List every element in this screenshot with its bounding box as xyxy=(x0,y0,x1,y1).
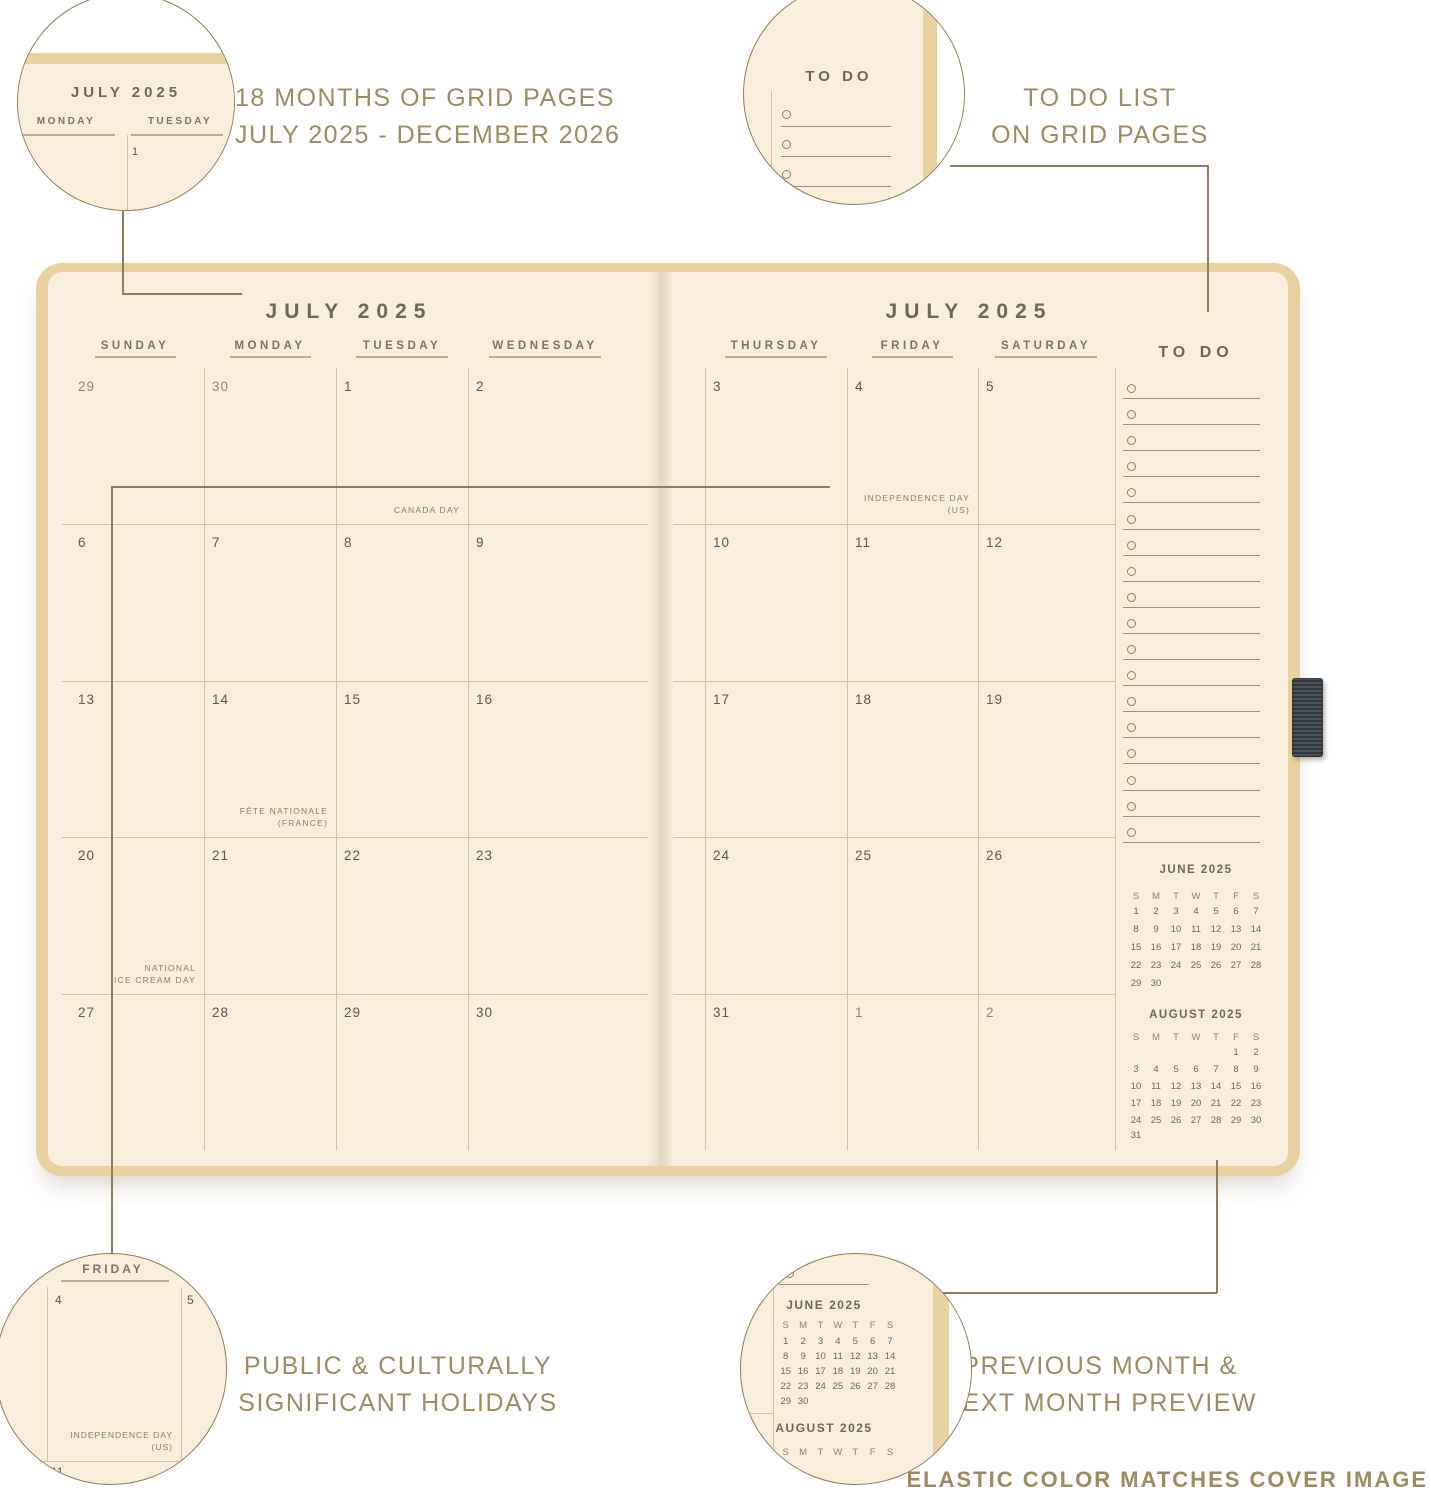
circle-mini-letters: SMTWTFS xyxy=(777,1320,899,1331)
mini-cell: 20 xyxy=(1231,942,1242,953)
elastic-note: ELASTIC COLOR MATCHES COVER IMAGE xyxy=(900,1467,1428,1493)
mini-cell: T xyxy=(1173,1032,1179,1043)
row-line xyxy=(62,837,648,838)
mini-cell: S xyxy=(1133,1032,1139,1043)
mini-cell: S xyxy=(1253,1032,1259,1043)
date-cell-31: 31 xyxy=(713,1005,730,1020)
mini-cell: 3 xyxy=(1173,906,1178,917)
caption-bottom-left-line1: PUBLIC & CULTURALLY xyxy=(208,1348,588,1385)
circle-mini-row: 891011121314 xyxy=(777,1351,899,1362)
mini-cell: 4 xyxy=(835,1336,840,1347)
mini-week-row: 17181920212223 xyxy=(1126,1098,1266,1109)
mini-cell: 25 xyxy=(833,1381,844,1392)
circle-todo-item-line xyxy=(781,186,891,187)
row-line xyxy=(673,837,1115,838)
mini-cell: 2 xyxy=(800,1336,805,1347)
circle-day-friday: FRIDAY xyxy=(43,1262,183,1276)
todo-item-line xyxy=(1123,424,1260,425)
day-header-underline xyxy=(995,356,1097,358)
circle-date-4: 4 xyxy=(55,1293,62,1307)
date-cell-12: 12 xyxy=(986,535,1003,550)
holiday-line: FÊTE NATIONALE xyxy=(178,805,328,817)
circle-todo-item-line xyxy=(781,156,891,157)
date-cell-18: 18 xyxy=(855,692,872,707)
todo-item-circle xyxy=(1127,515,1136,524)
day-header-underline xyxy=(872,356,953,358)
date-cell-10: 10 xyxy=(713,535,730,550)
mini-cell: 22 xyxy=(1131,960,1142,971)
mini-cell: 12 xyxy=(1211,924,1222,935)
mini-cell: T xyxy=(818,1447,824,1458)
mini-week-row: 12 xyxy=(1126,1047,1266,1058)
day-header-underline xyxy=(95,356,176,358)
todo-item-line xyxy=(1123,711,1260,712)
mini-cell: S xyxy=(1253,891,1259,902)
mini-cell: W xyxy=(833,1320,842,1331)
mini-cell: 6 xyxy=(1233,906,1238,917)
mini-cell: 20 xyxy=(867,1366,878,1377)
mini-cell: 24 xyxy=(1131,1115,1142,1126)
mini-cell: 5 xyxy=(1213,906,1218,917)
holiday-label: INDEPENDENCE DAY(US) xyxy=(820,492,970,516)
row-line xyxy=(62,681,648,682)
mini-week-row: 22232425262728 xyxy=(1126,960,1266,971)
mini-cell: 16 xyxy=(798,1366,809,1377)
mini-cell: 17 xyxy=(1131,1098,1142,1109)
mini-cell: 28 xyxy=(1211,1115,1222,1126)
cell-border-right xyxy=(181,1287,182,1461)
mini-cell: 1 xyxy=(1133,906,1138,917)
day-header-underline xyxy=(230,356,311,358)
holiday-line: (FRANCE) xyxy=(178,817,328,829)
mini-cell: 12 xyxy=(1171,1081,1182,1092)
todo-item-line xyxy=(1123,737,1260,738)
date-cell-27: 27 xyxy=(78,1005,95,1020)
page-fold xyxy=(646,272,674,1166)
date-cell-20: 20 xyxy=(78,848,95,863)
mini-cell: 14 xyxy=(1211,1081,1222,1092)
date-cell-29: 29 xyxy=(78,379,95,394)
mini-cell: M xyxy=(799,1447,807,1458)
mini-cell: 23 xyxy=(1151,960,1162,971)
mini-cell: 15 xyxy=(1131,942,1142,953)
circle-mini-row: 15161718192021 xyxy=(777,1366,899,1377)
callout-line-bottom-left-h xyxy=(111,486,830,488)
mini-cell: 5 xyxy=(1173,1064,1178,1075)
mini-cell: 16 xyxy=(1251,1081,1262,1092)
mini-cell: M xyxy=(1152,1032,1160,1043)
mini-cell: T xyxy=(1213,891,1219,902)
date-cell-16: 16 xyxy=(476,692,493,707)
zoom-circle-bottom-left: FRIDAY 4 5 INDEPENDENCE DAY (US) 11 xyxy=(0,1253,227,1485)
date-cell-11: 11 xyxy=(855,535,871,550)
column-divider xyxy=(847,368,848,1150)
cover-edge-band xyxy=(18,53,234,64)
todo-item-circle xyxy=(1127,776,1136,785)
row-line xyxy=(673,524,1115,525)
mini-week-row: 31 xyxy=(1126,1130,1266,1141)
mini-cell: 12 xyxy=(850,1351,861,1362)
todo-item-line xyxy=(1123,502,1260,503)
day-header-tuesday: TUESDAY xyxy=(327,340,477,352)
circle-mini-row: 1234567 xyxy=(777,1336,899,1347)
mini-cell: 22 xyxy=(1231,1098,1242,1109)
circle-date-1: 1 xyxy=(132,146,138,158)
row-line xyxy=(62,994,648,995)
todo-header: TO DO xyxy=(1126,344,1266,362)
circle-holiday-line2: (US) xyxy=(33,1441,173,1453)
pen-loop xyxy=(1292,678,1323,757)
mini-cell: 29 xyxy=(1131,978,1142,989)
circle-todo-item-circle xyxy=(782,170,791,179)
grid-row-line xyxy=(741,1413,773,1414)
callout-line-top-right-h xyxy=(950,165,1208,167)
todo-item-circle xyxy=(1127,619,1136,628)
todo-item-circle xyxy=(1127,567,1136,576)
mini-cell: 13 xyxy=(1191,1081,1202,1092)
date-cell-9: 9 xyxy=(476,535,485,550)
date-cell-4: 4 xyxy=(855,379,864,394)
todo-item-line xyxy=(1123,398,1260,399)
todo-item-circle xyxy=(1127,541,1136,550)
circle-day-monday: MONDAY xyxy=(18,116,114,127)
circle-todo-item-line xyxy=(781,126,891,127)
holiday-line: ICE CREAM DAY xyxy=(46,974,196,986)
date-cell-28: 28 xyxy=(212,1005,229,1020)
date-cell-2: 2 xyxy=(476,379,485,394)
holiday-line: NATIONAL xyxy=(46,962,196,974)
todo-item-line xyxy=(1123,450,1260,451)
caption-top-right-line2: ON GRID PAGES xyxy=(910,117,1290,154)
mini-cell: 14 xyxy=(1251,924,1262,935)
mini-cell: 16 xyxy=(1151,942,1162,953)
todo-item-line xyxy=(1123,685,1260,686)
todo-item-circle xyxy=(785,1269,794,1278)
todo-item-line xyxy=(1123,476,1260,477)
date-cell-14: 14 xyxy=(212,692,229,707)
circle-date-11: 11 xyxy=(51,1465,63,1479)
mini-cell: F xyxy=(870,1447,876,1458)
mini-cell: T xyxy=(818,1320,824,1331)
mini-cell: T xyxy=(852,1320,858,1331)
circle-todo-title: TO DO xyxy=(769,68,909,85)
todo-item-line xyxy=(1123,555,1260,556)
callout-line-top-left-h xyxy=(122,293,242,295)
mini-cell: 26 xyxy=(1211,960,1222,971)
todo-item-line xyxy=(1123,842,1260,843)
mini-week-row: 1234567 xyxy=(1126,906,1266,917)
todo-item-line xyxy=(779,1284,869,1285)
mini-cell: 8 xyxy=(783,1351,788,1362)
mini-week-row: 3456789 xyxy=(1126,1064,1266,1075)
mini-cell: 7 xyxy=(1253,906,1258,917)
mini-cell: 6 xyxy=(870,1336,875,1347)
date-cell-2: 2 xyxy=(986,1005,995,1020)
date-cell-30: 30 xyxy=(476,1005,493,1020)
date-cell-1: 1 xyxy=(344,379,353,394)
caption-top-left-line2: JULY 2025 - DECEMBER 2026 xyxy=(235,117,615,154)
mini-cell: 8 xyxy=(1133,924,1138,935)
mini-cell: 25 xyxy=(1151,1115,1162,1126)
todo-item-circle xyxy=(1127,645,1136,654)
todo-item-line xyxy=(1123,659,1260,660)
date-cell-17: 17 xyxy=(713,692,730,707)
todo-item-line xyxy=(1123,816,1260,817)
holiday-line: INDEPENDENCE DAY xyxy=(820,492,970,504)
mini-cell: 4 xyxy=(1153,1064,1158,1075)
mini-cell: W xyxy=(1192,891,1201,902)
mini-cell: 18 xyxy=(1151,1098,1162,1109)
mini-cell: 31 xyxy=(1131,1130,1142,1141)
date-cell-22: 22 xyxy=(344,848,361,863)
mini-cell: T xyxy=(1173,891,1179,902)
mini-cell: 18 xyxy=(1191,942,1202,953)
todo-item-line xyxy=(1123,633,1260,634)
todo-item-line xyxy=(1123,763,1260,764)
mini-cell: W xyxy=(1192,1032,1201,1043)
mini-cell: 23 xyxy=(798,1381,809,1392)
mini-cell: 9 xyxy=(1253,1064,1258,1075)
caption-top-left-line1: 18 MONTHS OF GRID PAGES xyxy=(235,80,615,117)
date-cell-29: 29 xyxy=(344,1005,361,1020)
mini-cell: 15 xyxy=(1231,1081,1242,1092)
row-line xyxy=(62,524,648,525)
mini-cell: S xyxy=(783,1447,789,1458)
mini-cell: T xyxy=(1213,1032,1219,1043)
mini-cell: 30 xyxy=(1251,1115,1262,1126)
zoom-circle-top-left: JULY 2025 MONDAY TUESDAY 1 xyxy=(17,0,235,211)
mini-cell: M xyxy=(799,1320,807,1331)
todo-item-line xyxy=(1123,581,1260,582)
todo-item-circle xyxy=(1127,384,1136,393)
callout-line-top-right-v xyxy=(1207,165,1209,312)
mini-cell: 22 xyxy=(780,1381,791,1392)
mini-week-row: 891011121314 xyxy=(1126,924,1266,935)
todo-item-line xyxy=(1123,607,1260,608)
mini-cell: M xyxy=(1152,891,1160,902)
todo-item-circle xyxy=(1127,593,1136,602)
callout-line-top-left-v xyxy=(122,209,124,294)
product-image: JULY 2025 JULY 2025 TO DO SUNDAYMONDAYTU… xyxy=(0,0,1431,1500)
mini-cell: S xyxy=(887,1447,893,1458)
mini-calendar-title: JUNE 2025 xyxy=(1126,864,1266,876)
circle-date-5: 5 xyxy=(187,1293,194,1307)
date-cell-15: 15 xyxy=(344,692,361,707)
todo-column-divider xyxy=(1115,368,1116,1150)
mini-cell: 15 xyxy=(780,1366,791,1377)
day-header-underline xyxy=(725,356,827,358)
mini-cell: 21 xyxy=(885,1366,896,1377)
mini-cell: 11 xyxy=(1191,924,1201,935)
day-underline xyxy=(21,134,115,136)
mini-cell: 3 xyxy=(1133,1064,1138,1075)
mini-cell: F xyxy=(870,1320,876,1331)
mini-cell: 30 xyxy=(1151,978,1162,989)
mini-cell: 21 xyxy=(1211,1098,1222,1109)
mini-cell: 29 xyxy=(1231,1115,1242,1126)
date-cell-23: 23 xyxy=(476,848,493,863)
circle-day-tuesday: TUESDAY xyxy=(130,116,230,127)
background xyxy=(949,1254,971,1484)
mini-cell: 26 xyxy=(1171,1115,1182,1126)
mini-cell: 13 xyxy=(867,1351,878,1362)
mini-cell: 30 xyxy=(798,1396,809,1407)
day-header-underline xyxy=(489,356,602,358)
date-cell-7: 7 xyxy=(212,535,221,550)
holiday-label: CANADA DAY xyxy=(310,504,460,516)
todo-item-line xyxy=(1123,529,1260,530)
callout-line-bottom-right-v xyxy=(1216,1160,1218,1293)
mini-cell: 19 xyxy=(1171,1098,1182,1109)
callout-line-bottom-left-v xyxy=(111,486,113,1253)
mini-cell: S xyxy=(887,1320,893,1331)
mini-week-row: 10111213141516 xyxy=(1126,1081,1266,1092)
mini-cell: 2 xyxy=(1153,906,1158,917)
circle-todo-item-circle xyxy=(782,140,791,149)
mini-cell: 24 xyxy=(815,1381,826,1392)
mini-cell: 6 xyxy=(1193,1064,1198,1075)
date-cell-6: 6 xyxy=(78,535,87,550)
circle-june-title: JUNE 2025 xyxy=(754,1298,894,1312)
mini-cell: 29 xyxy=(780,1396,791,1407)
mini-cell: 27 xyxy=(1191,1115,1202,1126)
mini-cell: S xyxy=(1133,891,1139,902)
circle-todo-item-circle xyxy=(782,110,791,119)
mini-cell: 20 xyxy=(1191,1098,1202,1109)
mini-cell: 10 xyxy=(1131,1081,1142,1092)
todo-divider xyxy=(771,91,772,204)
mini-calendar-title: AUGUST 2025 xyxy=(1126,1009,1266,1021)
holiday-label: FÊTE NATIONALE(FRANCE) xyxy=(178,805,328,829)
mini-cell: 9 xyxy=(1153,924,1158,935)
zoom-circle-top-right: TO DO xyxy=(743,0,965,205)
circle-holiday-line1: INDEPENDENCE DAY xyxy=(33,1429,173,1441)
todo-divider xyxy=(773,1254,774,1484)
background xyxy=(937,0,964,204)
mini-cell: 9 xyxy=(800,1351,805,1362)
day-header-wednesday: WEDNESDAY xyxy=(470,340,620,352)
mini-cell: 24 xyxy=(1171,960,1182,971)
mini-cell: 11 xyxy=(833,1351,843,1362)
day-header-thursday: THURSDAY xyxy=(701,340,851,352)
circle-todo-item-circle xyxy=(782,200,791,205)
holiday-label: NATIONALICE CREAM DAY xyxy=(46,962,196,986)
date-cell-1: 1 xyxy=(855,1005,864,1020)
caption-top-right-line1: TO DO LIST xyxy=(910,80,1290,117)
caption-top-left: 18 MONTHS OF GRID PAGES JULY 2025 - DECE… xyxy=(235,80,615,154)
mini-week-row: 24252627282930 xyxy=(1126,1115,1266,1126)
mini-week-row: 2930 xyxy=(1126,978,1266,989)
mini-day-letters: SMTWTFS xyxy=(1126,891,1266,902)
page-fore-edge xyxy=(933,1254,949,1484)
cell-border-bottom xyxy=(26,1461,191,1462)
zoom-circle-bottom-right: JUNE 2025 SMTWTFS12345678910111213141516… xyxy=(740,1253,972,1485)
mini-cell: 27 xyxy=(1231,960,1242,971)
circle-mini-row: 2930 xyxy=(777,1396,899,1407)
mini-cell: 21 xyxy=(1251,942,1262,953)
mini-cell: 7 xyxy=(1213,1064,1218,1075)
day-header-friday: FRIDAY xyxy=(837,340,987,352)
mini-cell: 2 xyxy=(1253,1047,1258,1058)
date-cell-3: 3 xyxy=(713,379,722,394)
date-cell-26: 26 xyxy=(986,848,1003,863)
mini-cell: 10 xyxy=(815,1351,826,1362)
mini-cell: 1 xyxy=(783,1336,788,1347)
mini-cell: 10 xyxy=(1171,924,1182,935)
mini-cell: 23 xyxy=(1251,1098,1262,1109)
mini-cell: 26 xyxy=(850,1381,861,1392)
holiday-line: CANADA DAY xyxy=(310,504,460,516)
mini-cell: 17 xyxy=(815,1366,826,1377)
date-cell-8: 8 xyxy=(344,535,353,550)
date-cell-21: 21 xyxy=(212,848,229,863)
mini-cell: 13 xyxy=(1231,924,1242,935)
mini-cell: 7 xyxy=(887,1336,892,1347)
todo-item-circle xyxy=(1127,802,1136,811)
mini-cell: 5 xyxy=(853,1336,858,1347)
mini-cell: W xyxy=(833,1447,842,1458)
date-cell-13: 13 xyxy=(78,692,95,707)
row-line xyxy=(673,994,1115,995)
date-cell-25: 25 xyxy=(855,848,872,863)
mini-cell: 14 xyxy=(885,1351,896,1362)
day-header-saturday: SATURDAY xyxy=(971,340,1121,352)
day-header-sunday: SUNDAY xyxy=(60,340,210,352)
mini-cell: 4 xyxy=(1193,906,1198,917)
caption-bottom-left: PUBLIC & CULTURALLY SIGNIFICANT HOLIDAYS xyxy=(208,1348,588,1422)
circle-mini-row: 22232425262728 xyxy=(777,1381,899,1392)
date-cell-30: 30 xyxy=(212,379,229,394)
caption-top-right: TO DO LIST ON GRID PAGES xyxy=(910,80,1290,154)
row-line xyxy=(673,681,1115,682)
mini-cell: 8 xyxy=(1233,1064,1238,1075)
mini-cell: 18 xyxy=(833,1366,844,1377)
date-cell-5: 5 xyxy=(986,379,995,394)
mini-cell: 11 xyxy=(1151,1081,1161,1092)
callout-line-bottom-right-h xyxy=(941,1292,1217,1294)
date-cell-19: 19 xyxy=(986,692,1003,707)
column-divider xyxy=(978,368,979,1150)
day-underline xyxy=(61,1280,169,1282)
day-underline xyxy=(131,134,223,136)
mini-cell: S xyxy=(783,1320,789,1331)
holiday-line: (US) xyxy=(820,504,970,516)
day-header-underline xyxy=(356,356,448,358)
todo-item-circle xyxy=(1127,828,1136,837)
caption-bottom-left-line2: SIGNIFICANT HOLIDAYS xyxy=(208,1385,588,1422)
page-fore-edge xyxy=(923,0,937,204)
circle-month-title: JULY 2025 xyxy=(36,84,216,101)
right-page-title: JULY 2025 xyxy=(843,300,1095,324)
left-page-title: JULY 2025 xyxy=(223,300,475,324)
mini-week-row: 15161718192021 xyxy=(1126,942,1266,953)
mini-cell: 17 xyxy=(1171,942,1182,953)
mini-cell: T xyxy=(852,1447,858,1458)
mini-cell: F xyxy=(1233,1032,1239,1043)
circle-mini-letters: SMTWTFS xyxy=(777,1447,899,1458)
mini-cell: 27 xyxy=(867,1381,878,1392)
todo-item-line xyxy=(1123,790,1260,791)
mini-cell: 28 xyxy=(885,1381,896,1392)
circle-august-title: AUGUST 2025 xyxy=(754,1421,894,1435)
date-cell-24: 24 xyxy=(713,848,730,863)
mini-cell: 3 xyxy=(818,1336,823,1347)
mini-cell: 28 xyxy=(1251,960,1262,971)
mini-cell: 1 xyxy=(1233,1047,1238,1058)
mini-cell: F xyxy=(1233,891,1239,902)
mini-cell: 19 xyxy=(850,1366,861,1377)
day-header-monday: MONDAY xyxy=(195,340,345,352)
